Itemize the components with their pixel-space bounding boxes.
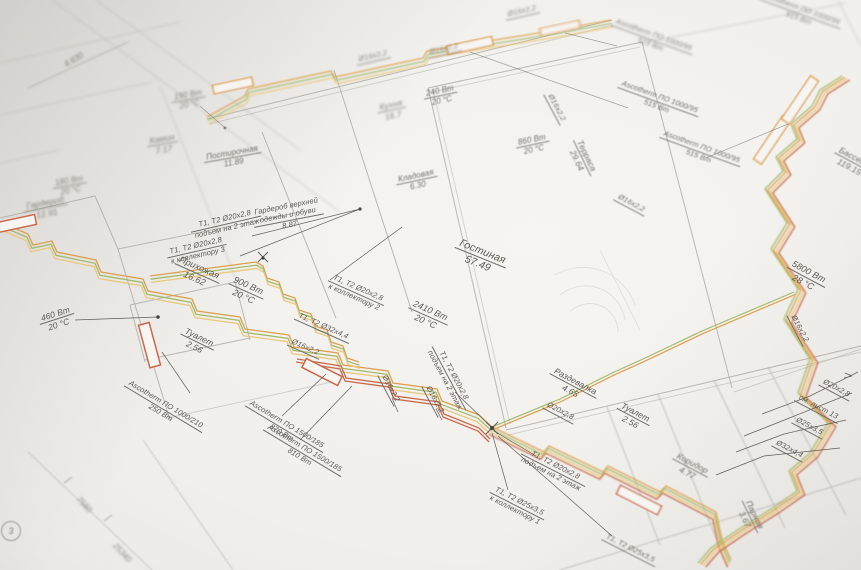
pipe-spec: Ø16х2,2	[504, 3, 540, 20]
room-label: Туалет2.56	[176, 324, 218, 359]
room-label: Кладовая6.30	[394, 167, 439, 195]
power-label: 900 Вт20 °С	[224, 273, 267, 309]
room-label: Гардероб12.91	[22, 194, 69, 222]
room-label: Камин7.17	[146, 131, 181, 157]
pipe-label: Ø25х3,5	[791, 414, 827, 439]
dimension-value: 4.630	[60, 49, 88, 70]
power-label: 240 Вт20 °С	[422, 83, 460, 110]
radiator-spec-label: Ascotherm ПО 1000/95515 Вт	[756, 0, 844, 38]
radiator-model: Ascotherm ПО 1000/210	[124, 378, 207, 433]
dimension-value: 7560	[72, 493, 95, 517]
dimension-value: 25340	[109, 539, 136, 566]
power-label: 190 Вт20 °С	[170, 87, 207, 113]
room-label: Терраса29.64	[564, 136, 600, 181]
pipe-spec: Ø16х2,2	[355, 48, 391, 65]
pipe-label: Т1, Т2 Ø20х2,8подъем на 2 этаж	[517, 445, 589, 494]
power-label: 180 Вт20 °С	[51, 173, 88, 199]
pipe-label: Ø16х2,2	[786, 311, 811, 347]
power-label: 2410 Вт20 °С	[404, 297, 452, 335]
pipe-spec: Ø16х2,2	[786, 311, 811, 347]
power-label: 460 Вт20 °С	[37, 303, 78, 334]
pipe-label: Ø16х2,2	[543, 90, 568, 126]
pipe-spec: Ø16х2,2	[287, 336, 323, 359]
pipe-label: Ø32х4,4	[771, 437, 807, 462]
pipe-spec: Ø20х2,8	[542, 399, 578, 424]
dimension-label: 4.630	[60, 49, 88, 70]
room-label: Кухня16.7	[376, 97, 409, 124]
room-label: Туалет2.56	[612, 399, 654, 435]
pipe-spec: Ø32х4,4	[771, 437, 807, 462]
pipe-label: Ø16х2,2	[504, 3, 540, 20]
room-label: Гостиная57.49	[450, 236, 510, 280]
pipe-spec: Т1, Т2 Ø25х3,5	[601, 531, 658, 567]
pipe-spec: Т1, Т2 Ø32х4,4	[294, 310, 352, 343]
radiator-spec-label: Ascotherm ПО 1000/95515 Вт	[656, 128, 744, 175]
radiator-spec-label: Ascotherm ПО 1000/95515 Вт	[608, 16, 696, 63]
pipe-label: Т1, Т2 Ø25х3,5	[601, 531, 658, 567]
pipe-label: Т1, Т2 Ø20х2,8к коллектору 2	[324, 272, 387, 314]
pipe-label: Ø16х2,2	[426, 41, 462, 58]
power-label: 5800 Вт28 °С	[782, 257, 830, 297]
pipe-label: Ø20х2,8	[818, 376, 854, 401]
room-label: Парная3.67	[733, 496, 768, 538]
pipe-label: Ø16х2,2	[287, 336, 323, 359]
pipe-spec: Ø16х2,2	[543, 90, 568, 126]
pipe-spec: Ø20х2,8	[818, 376, 854, 401]
radiator-spec-label: Ascotherm ПО 1000/95515 Вт	[614, 78, 702, 125]
label-layer: Гостиная57.49Прихожая16.62Туалет2.56Гард…	[0, 0, 861, 570]
dimension-label: 25340	[109, 539, 136, 566]
pipe-spec: Ø25х3,5	[791, 414, 827, 439]
axis-marker: 3	[1, 521, 21, 541]
blueprint-photo: Гостиная57.49Прихожая16.62Туалет2.56Гард…	[0, 0, 861, 570]
pipe-label: Т1, Т2 Ø25х3,5к коллектору 1	[486, 484, 549, 528]
pipe-label: Ø20х2,8	[542, 399, 578, 424]
room-label: Коридор4.77	[667, 449, 712, 486]
room-label: Бассейн119.15	[830, 143, 861, 180]
pipe-spec: Ø16х2,2	[613, 191, 649, 216]
pipe-label: Т1, Т2 Ø32х4,4	[294, 310, 352, 343]
dimension-label: 7560	[72, 493, 95, 517]
pipe-spec: Ø16х2,2	[426, 41, 462, 58]
pipe-spec: Ø16х2,2	[377, 371, 402, 407]
pipe-label: Ø16х2,2	[355, 48, 391, 65]
pipe-label: Ø16х2,2	[377, 371, 402, 407]
pipe-label: Т1, Т2 Ø20х2,8подъем на 2 этаж	[189, 207, 263, 241]
pipe-label: Ø16х2,2	[613, 191, 649, 216]
radiator-spec-label: Ascotherm ПО 1000/210250 Вт	[119, 378, 206, 441]
power-label: 860 Вт20 °С	[514, 132, 552, 159]
room-label: Постирочная11.89	[203, 143, 264, 173]
room-label: Гардероб верхнейодежды и обуви8.87	[251, 196, 326, 237]
